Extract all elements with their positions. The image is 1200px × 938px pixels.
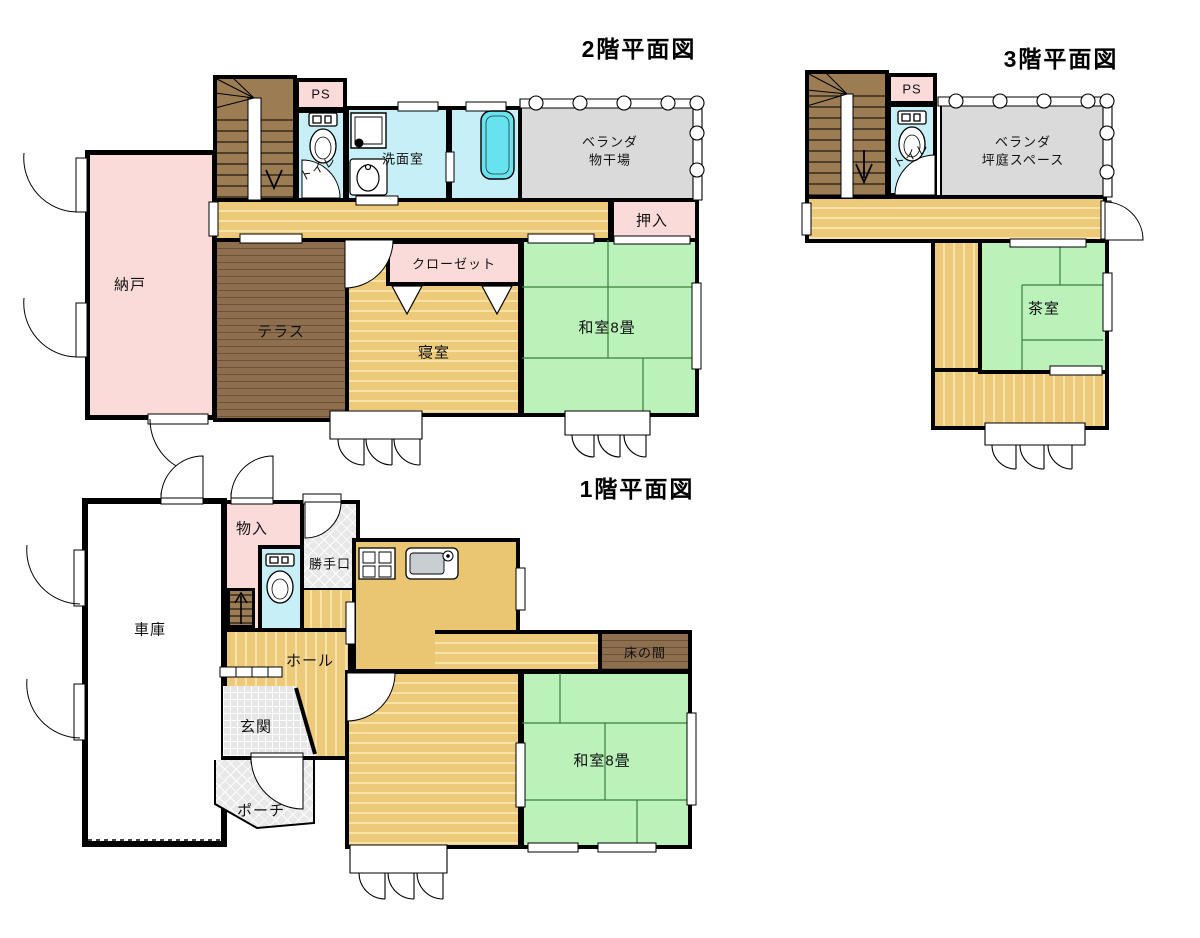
room-label-veranda-2f-line1: ベランダ xyxy=(582,132,638,151)
room-label-tokonoma-1f: 床の間 xyxy=(624,643,666,662)
room-label-garage-1f: 車庫 xyxy=(134,619,166,640)
room-label-closet-2f: クローゼット xyxy=(412,254,496,273)
floor3-title: 3階平面図 xyxy=(1004,40,1119,74)
room-label-porch-1f: ポーチ xyxy=(237,800,285,821)
room-label-veranda-2f-line2: 物干場 xyxy=(589,150,631,169)
room-label-ps-2f: PS xyxy=(311,87,330,102)
floorplan-canvas: 2階平面図 3階平面図 1階平面図 PS トイレ 洗面室 ベランダ 物干場 押入… xyxy=(0,0,1200,938)
room-staircase-1f xyxy=(227,588,255,628)
room-corridor-1f xyxy=(435,630,605,673)
floor2-title: 2階平面図 xyxy=(582,30,697,64)
room-label-monoire-1f: 物入 xyxy=(236,518,268,539)
room-label-terrace-2f: テラス xyxy=(257,321,305,342)
room-toilet-1f xyxy=(258,545,304,632)
room-backdoor-katteguchi-1f xyxy=(300,500,360,592)
room-garage-1f xyxy=(82,498,227,847)
room-label-bedroom-2f: 寝室 xyxy=(418,342,450,363)
room-living-1f xyxy=(345,670,522,849)
room-label-katteguchi-1f: 勝手口 xyxy=(309,554,351,573)
room-label-oshiire-2f: 押入 xyxy=(636,210,668,231)
room-label-washitsu-1f: 和室8畳 xyxy=(573,750,630,771)
room-label-genkan-1f: 玄関 xyxy=(240,716,272,737)
room-label-tearoom-3f: 茶室 xyxy=(1028,298,1060,319)
room-label-nando-2f: 納戸 xyxy=(114,274,146,295)
room-hall-strip-1f xyxy=(302,590,352,632)
room-label-washroom-2f: 洗面室 xyxy=(382,149,424,168)
room-label-veranda-3f-line1: ベランダ xyxy=(995,132,1051,151)
room-label-washitsu-2f: 和室8畳 xyxy=(578,317,635,338)
floor1-title: 1階平面図 xyxy=(580,470,695,504)
room-label-veranda-3f-line2: 坪庭スペース xyxy=(982,150,1064,169)
room-label-ps-3f: PS xyxy=(902,82,921,97)
room-label-hall-1f: ホール xyxy=(286,650,334,671)
